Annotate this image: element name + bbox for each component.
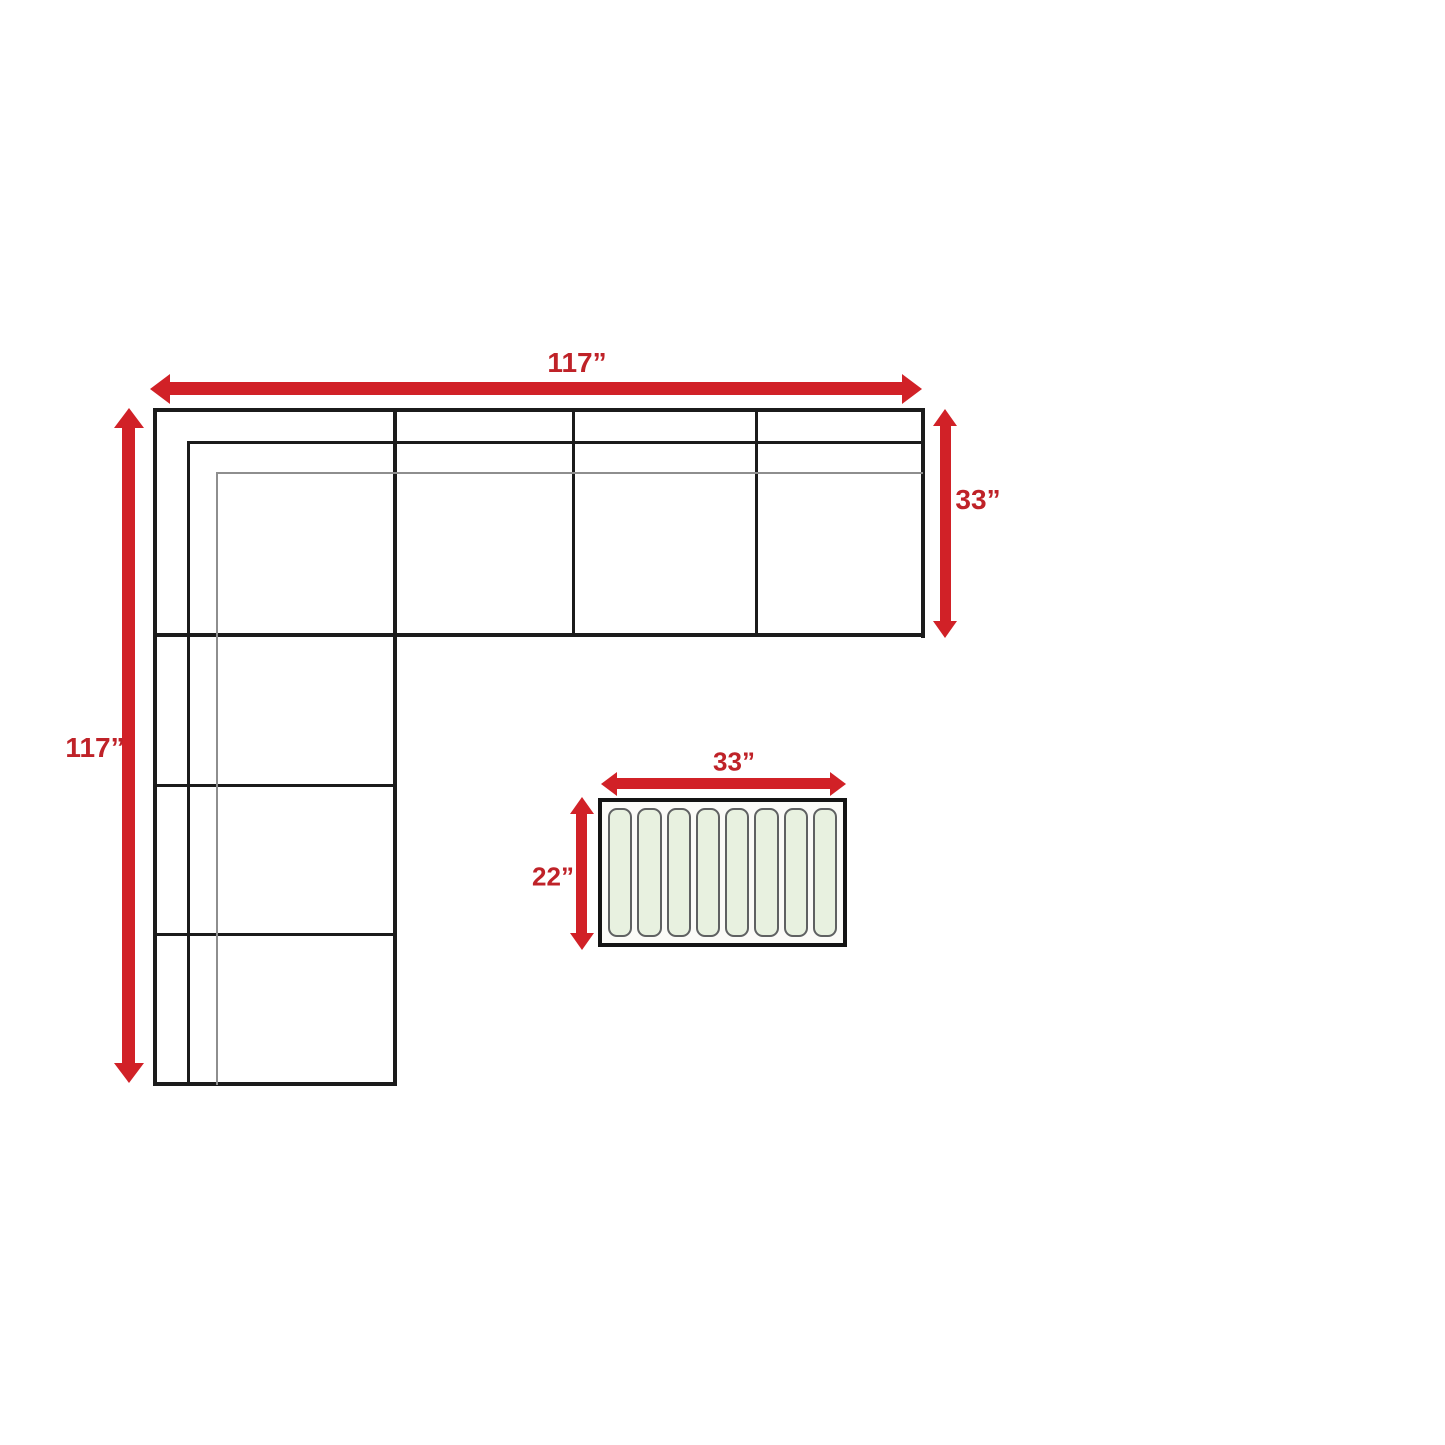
sofa-width-label: 117” (547, 347, 606, 379)
table-slat (813, 808, 837, 937)
arrowhead-right (902, 374, 922, 404)
table-slat (608, 808, 632, 937)
arrowhead-right (830, 772, 846, 796)
sofa-backrest-line-left (187, 441, 190, 1085)
table-width-label: 33” (713, 747, 755, 778)
arrow-shaft (576, 812, 587, 935)
table-slat (725, 808, 749, 937)
sofa-backrest-line-top (187, 441, 925, 444)
sofa-height-label: 117” (65, 732, 124, 764)
arrowhead-up (114, 408, 144, 428)
arrowhead-down (570, 933, 594, 950)
table-slat (637, 808, 661, 937)
arrow-shaft (940, 424, 951, 621)
arrowhead-down (114, 1063, 144, 1083)
table-slat (754, 808, 778, 937)
sofa-top-edge (153, 408, 925, 412)
sofa-divider-vertical-1 (393, 408, 397, 1086)
table-slats (608, 808, 837, 937)
sofa-cushion-line-top (216, 472, 923, 474)
furniture-dimension-diagram: 117” 117” 33” 33” 22” (0, 0, 1445, 1445)
coffee-table-plan (598, 798, 847, 947)
table-depth-label: 22” (532, 862, 574, 893)
table-slat (667, 808, 691, 937)
arrow-shaft (615, 778, 832, 789)
table-slat (696, 808, 720, 937)
arrowhead-down (933, 621, 957, 638)
table-slat (784, 808, 808, 937)
arrow-shaft (167, 382, 905, 395)
sofa-depth-label: 33” (955, 484, 1000, 516)
sofa-row-bottom-edge (153, 633, 925, 637)
sofa-cushion-line-left (216, 472, 218, 1085)
sofa-left-edge (153, 408, 157, 1086)
